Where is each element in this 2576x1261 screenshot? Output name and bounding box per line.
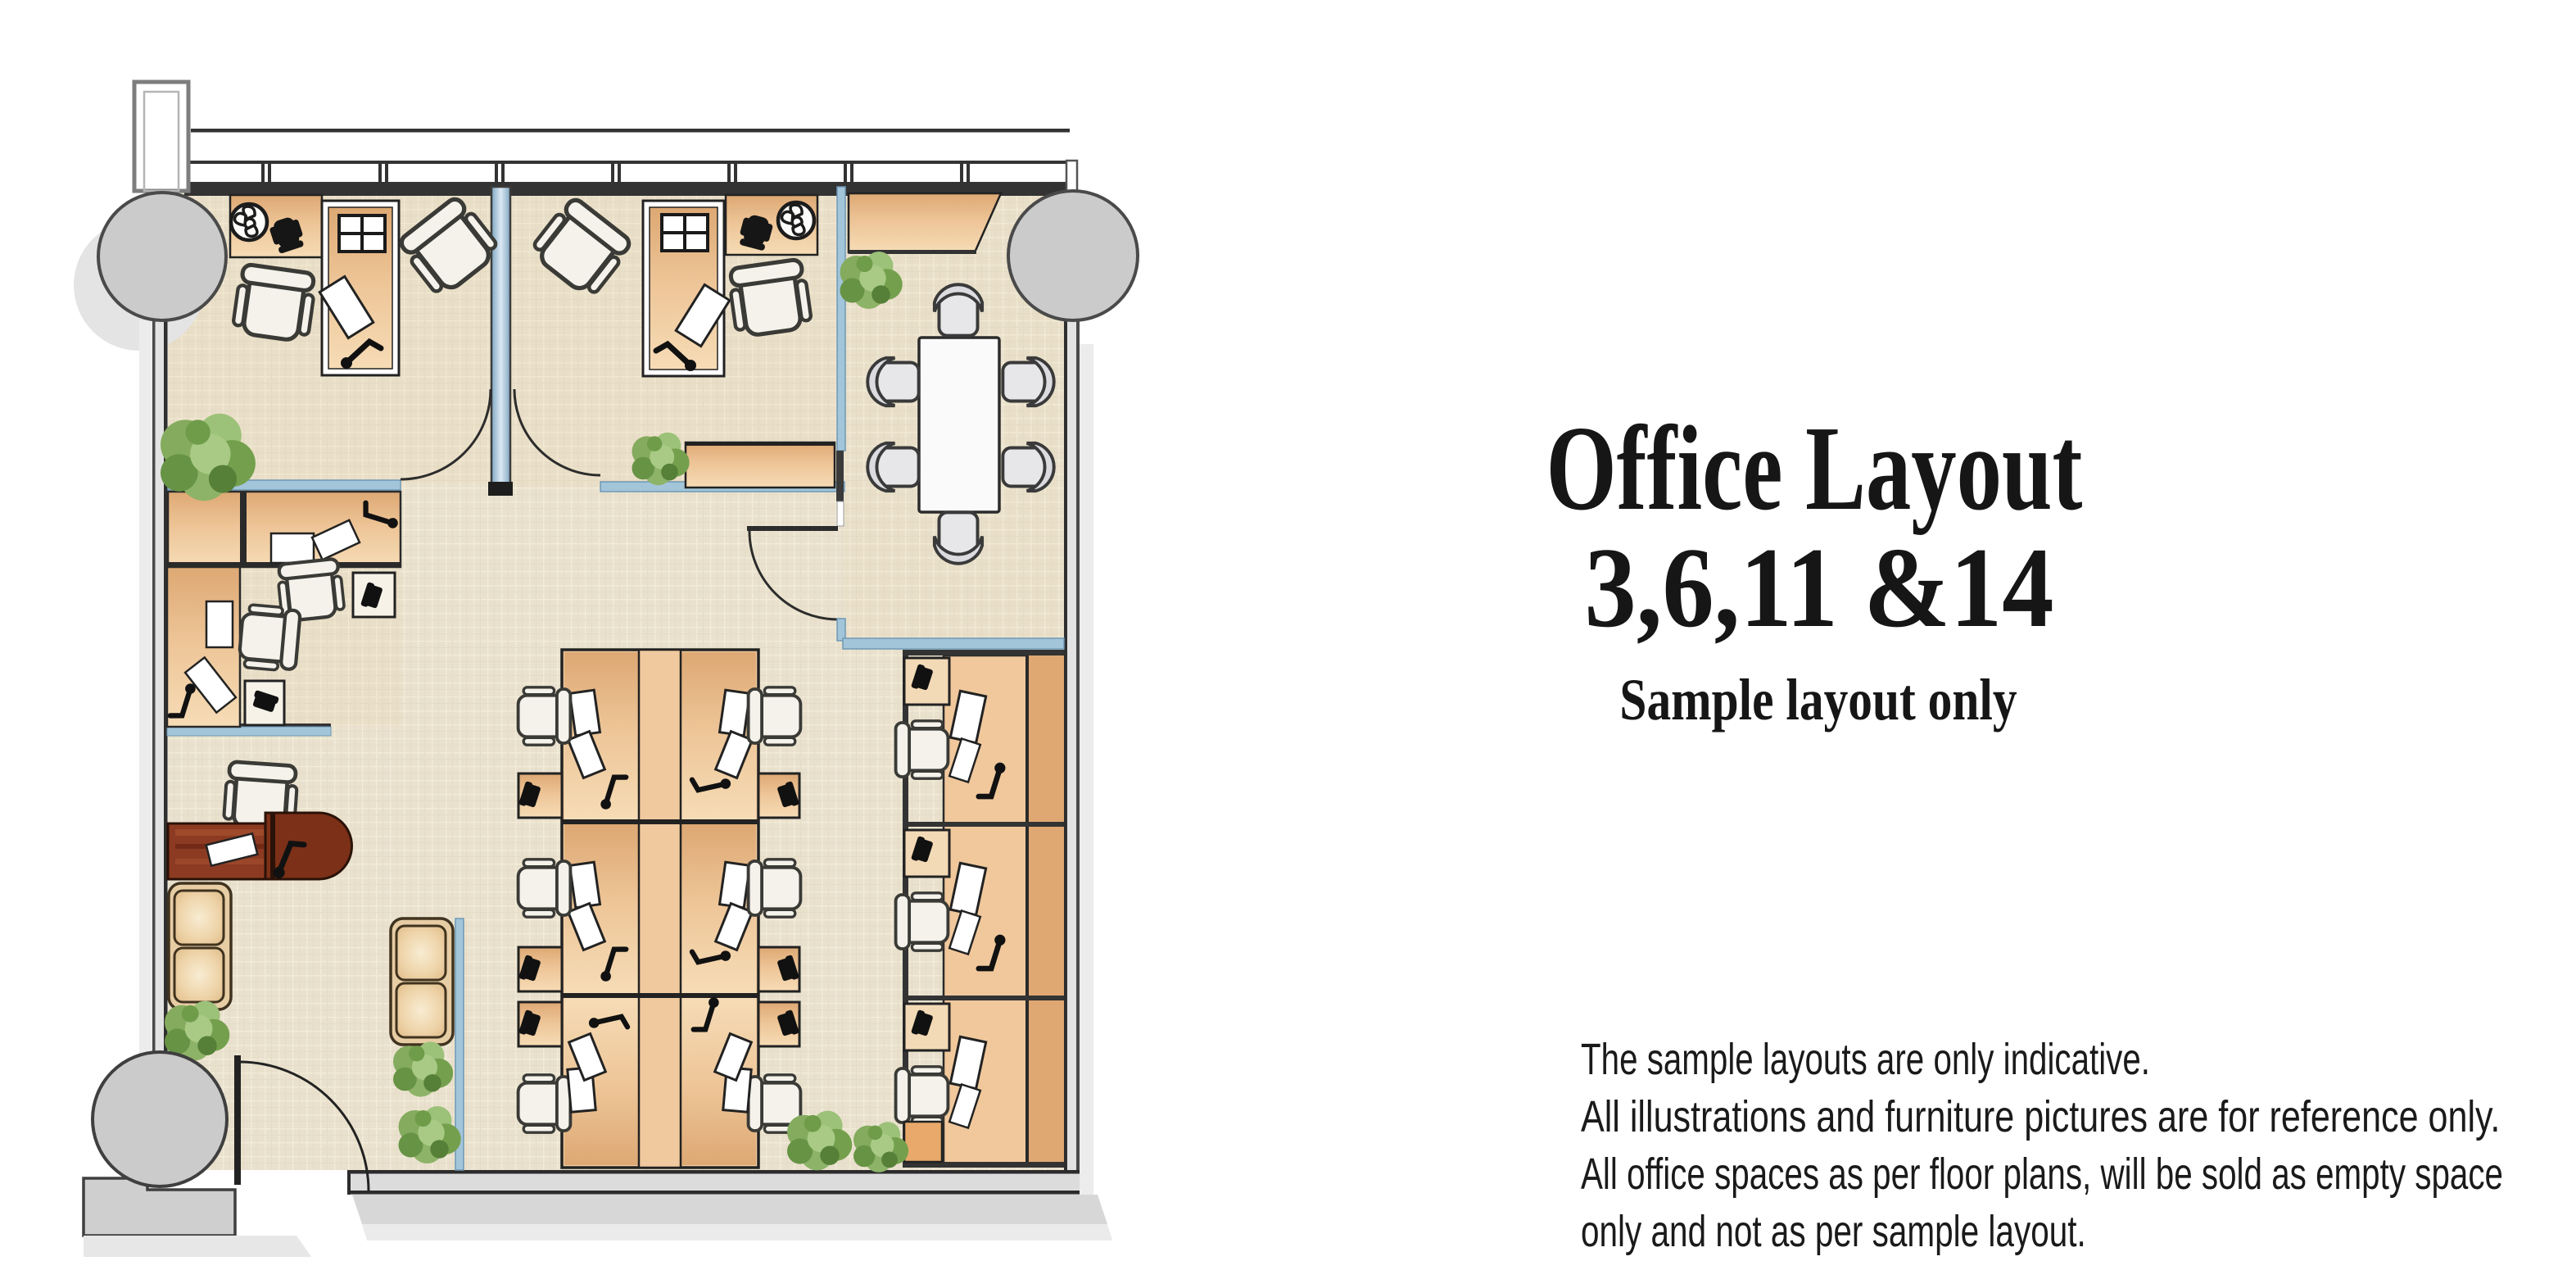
svg-text:3,6,11 &14: 3,6,11 &14	[1585, 524, 2054, 651]
svg-text:All illustrations and furnitur: All illustrations and furniture pictures…	[1581, 1092, 2500, 1141]
svg-text:Sample layout only: Sample layout only	[1619, 668, 2017, 733]
svg-text:Office Layout: Office Layout	[1546, 402, 2083, 536]
svg-text:only and not as per sample lay: only and not as per sample layout.	[1581, 1207, 2086, 1256]
svg-text:The sample layouts are only in: The sample layouts are only indicative.	[1581, 1035, 2150, 1084]
svg-text:All office spaces as per floor: All office spaces as per floor plans, wi…	[1581, 1150, 2503, 1199]
